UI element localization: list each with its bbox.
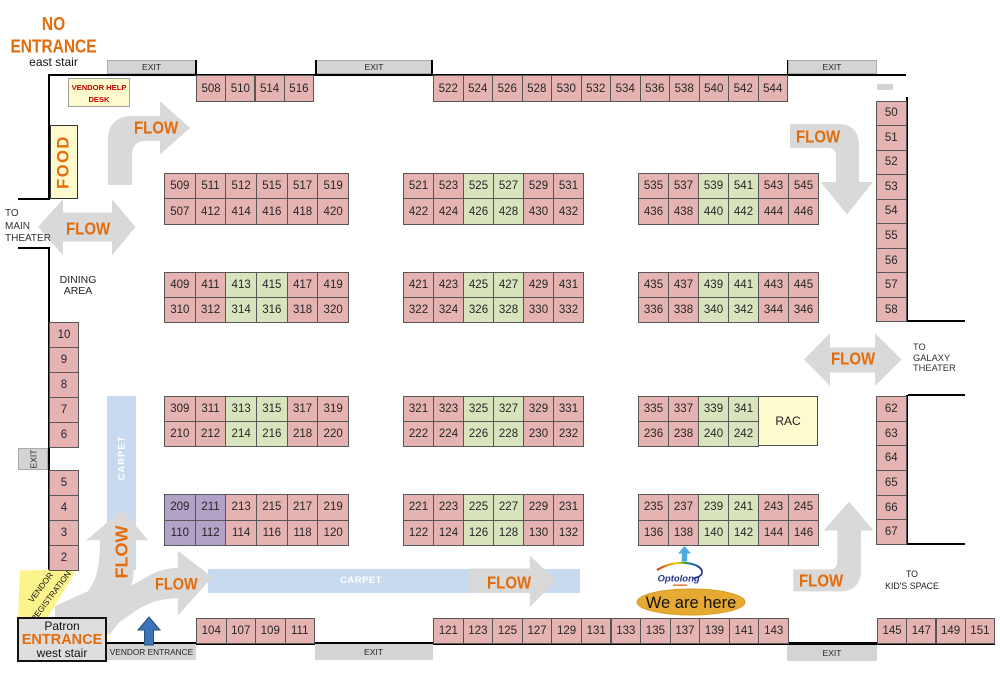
svg-text:We are here: We are here: [646, 594, 737, 612]
svg-text:Optolong: Optolong: [658, 574, 700, 585]
